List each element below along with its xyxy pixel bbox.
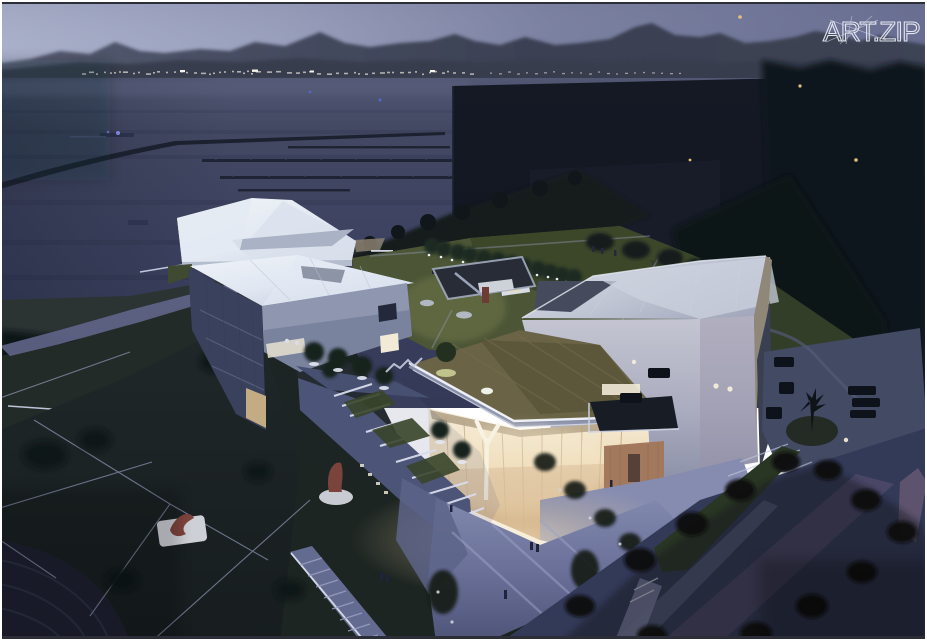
svg-text:ART.ZIP: ART.ZIP bbox=[823, 16, 920, 47]
